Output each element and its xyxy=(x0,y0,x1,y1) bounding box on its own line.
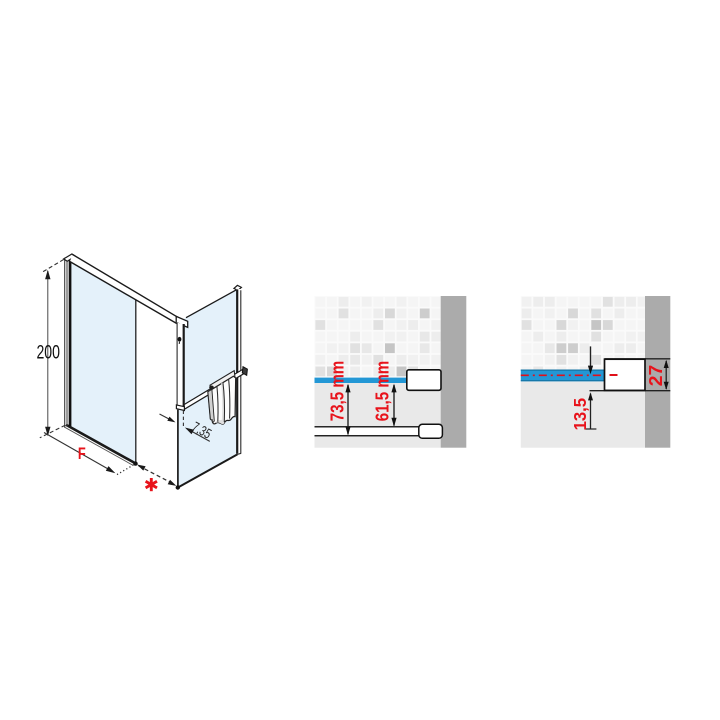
svg-text:13,5: 13,5 xyxy=(570,398,590,431)
svg-text:73,5 mm: 73,5 mm xyxy=(327,361,347,422)
svg-text:F: F xyxy=(78,446,86,464)
svg-text:61,5 mm: 61,5 mm xyxy=(373,361,393,422)
svg-text:200: 200 xyxy=(36,342,59,364)
svg-text:27: 27 xyxy=(646,365,666,387)
